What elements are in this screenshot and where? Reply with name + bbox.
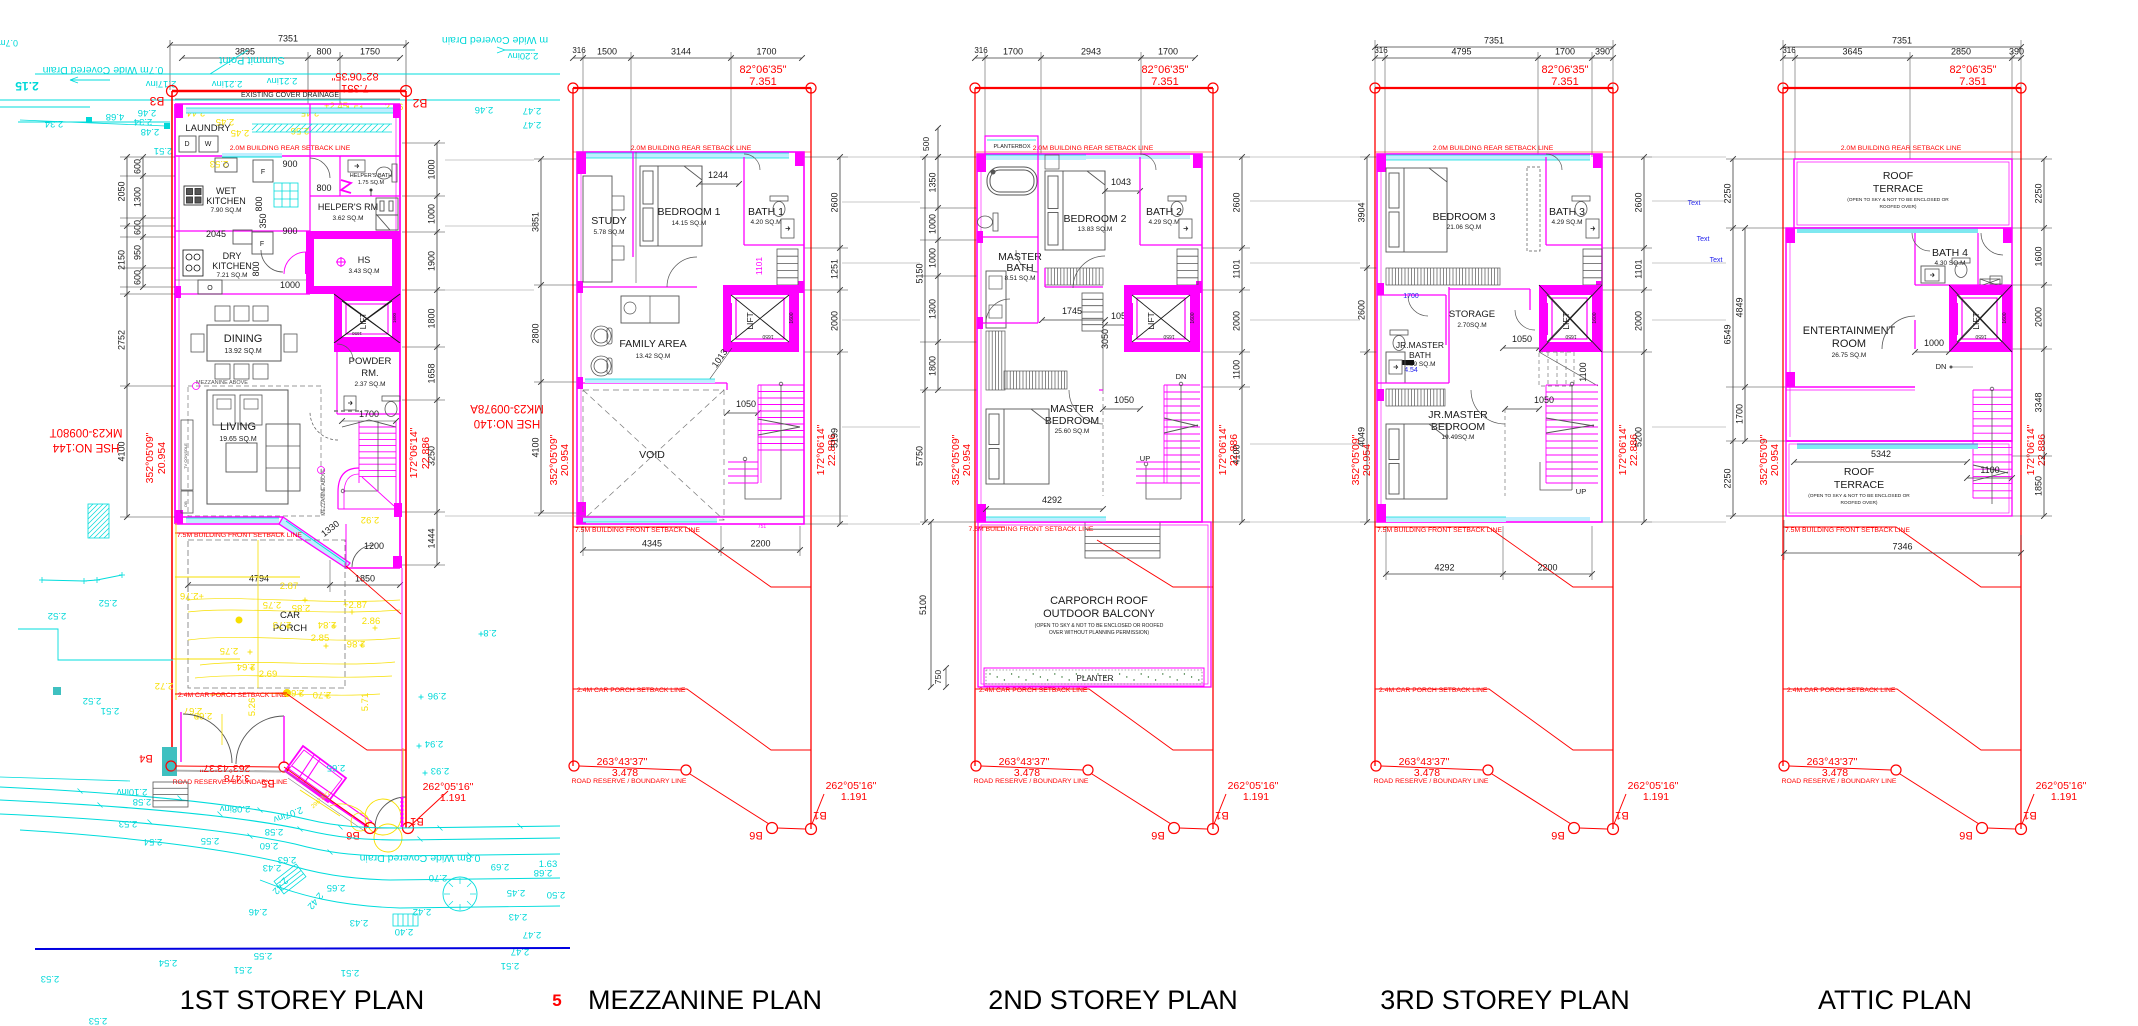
svg-text:1850: 1850 (2034, 476, 2044, 496)
svg-text:2.47: 2.47 (523, 105, 542, 116)
svg-text:+2.76: +2.76 (180, 590, 204, 601)
svg-text:1700: 1700 (1403, 293, 1419, 300)
svg-text:1600: 1600 (2002, 312, 2008, 323)
svg-text:2600: 2600 (830, 192, 840, 212)
svg-text:1600: 1600 (1190, 312, 1196, 323)
svg-text:82°06'35": 82°06'35" (1541, 64, 1588, 76)
svg-text:1100: 1100 (1578, 362, 1588, 381)
svg-text:ROOF: ROOF (1883, 170, 1913, 182)
svg-text:B1: B1 (2023, 809, 2036, 821)
svg-text:600: 600 (133, 270, 143, 285)
svg-text:B6: B6 (1551, 829, 1564, 841)
svg-text:1650: 1650 (762, 333, 773, 339)
svg-text:3144: 3144 (671, 47, 691, 57)
svg-text:2000: 2000 (1634, 311, 1644, 331)
svg-text:TERRACE: TERRACE (1834, 479, 1884, 491)
svg-text:20.954: 20.954 (961, 444, 973, 476)
svg-text:MK23-00980T: MK23-00980T (50, 426, 123, 438)
svg-text:MEZZANINE ABOVE: MEZZANINE ABOVE (196, 380, 248, 386)
svg-text:316: 316 (1374, 46, 1388, 55)
svg-text:Text: Text (1697, 236, 1710, 243)
svg-text:5: 5 (552, 991, 561, 1010)
svg-text:2.65: 2.65 (327, 882, 346, 893)
svg-text:13.92 SQ.M: 13.92 SQ.M (224, 348, 262, 355)
svg-text:2250: 2250 (1723, 183, 1733, 203)
svg-text:OVER WITHOUT PLANNING PERMISSI: OVER WITHOUT PLANNING PERMISSION) (1049, 630, 1150, 636)
svg-text:316: 316 (572, 46, 586, 55)
svg-text:ROAD RESERVE / BOUNDARY LINE: ROAD RESERVE / BOUNDARY LINE (974, 778, 1089, 785)
svg-text:ATTIC PLAN: ATTIC PLAN (1818, 985, 1972, 1015)
svg-text:1.63: 1.63 (539, 859, 558, 870)
svg-text:2.20inv: 2.20inv (507, 50, 538, 61)
svg-text:2.40: 2.40 (395, 926, 414, 937)
svg-text:2.15: 2.15 (15, 79, 39, 93)
svg-text:2.46: 2.46 (249, 906, 268, 917)
svg-text:HELPER'S RM: HELPER'S RM (318, 202, 378, 212)
svg-text:5150: 5150 (915, 263, 925, 283)
svg-text:800: 800 (254, 196, 264, 211)
svg-text:LIFT: LIFT (745, 312, 755, 329)
svg-text:1100: 1100 (1232, 360, 1242, 379)
svg-text:1050: 1050 (1534, 395, 1554, 405)
svg-text:OUTDOOR BALCONY: OUTDOOR BALCONY (1043, 608, 1156, 620)
svg-text:2.73: 2.73 (273, 619, 292, 630)
svg-text:2.51: 2.51 (154, 145, 173, 156)
svg-text:2.53: 2.53 (41, 973, 60, 984)
svg-text:TERRACE: TERRACE (1873, 183, 1923, 195)
svg-text:2.48: 2.48 (141, 126, 160, 137)
svg-text:m Wide Covered Drain: m Wide Covered Drain (442, 34, 548, 46)
svg-text:2050: 2050 (117, 181, 127, 201)
svg-text:6549: 6549 (1723, 324, 1733, 344)
svg-text:BEDROOM 1: BEDROOM 1 (657, 206, 720, 218)
svg-text:0.8m Wide Covered Drain: 0.8m Wide Covered Drain (359, 852, 480, 864)
svg-text:2.47: 2.47 (523, 929, 542, 940)
svg-text:1700: 1700 (1555, 47, 1575, 57)
svg-text:UP: UP (1576, 487, 1586, 496)
svg-text:BEDROOM 2: BEDROOM 2 (1063, 213, 1126, 225)
svg-text:800: 800 (251, 261, 261, 276)
svg-text:1300: 1300 (928, 299, 938, 319)
svg-text:7.5M BUILDING FRONT SETBACK LI: 7.5M BUILDING FRONT SETBACK LINE (1377, 527, 1502, 534)
svg-text:BATH: BATH (1006, 262, 1033, 274)
svg-text:82°06'35": 82°06'35" (1141, 64, 1188, 76)
svg-text:BATH: BATH (1409, 350, 1431, 360)
svg-text:2.34: 2.34 (45, 118, 64, 129)
svg-text:HSE NO:140: HSE NO:140 (474, 417, 540, 429)
svg-text:2.55: 2.55 (254, 950, 273, 961)
svg-text:5342: 5342 (1871, 449, 1891, 459)
svg-text:5100: 5100 (918, 595, 928, 615)
svg-text:2.72: 2.72 (155, 680, 174, 691)
svg-text:4.20 SQ.M: 4.20 SQ.M (750, 219, 781, 226)
svg-text:4345: 4345 (642, 539, 662, 549)
svg-text:7.351: 7.351 (1151, 76, 1179, 88)
svg-text:1750: 1750 (360, 47, 380, 57)
svg-text:7.351: 7.351 (1551, 76, 1579, 88)
svg-text:4794: 4794 (249, 574, 269, 584)
svg-text:2.96: 2.96 (428, 690, 447, 701)
svg-text:7351: 7351 (1484, 36, 1504, 46)
svg-text:350: 350 (258, 213, 268, 228)
svg-text:390: 390 (2009, 47, 2024, 57)
svg-text:2.75: 2.75 (263, 599, 282, 610)
svg-text:B5: B5 (261, 777, 274, 789)
svg-text:2.21inv: 2.21inv (266, 75, 297, 86)
svg-text:2000: 2000 (2034, 307, 2044, 327)
svg-text:1.191: 1.191 (440, 792, 466, 804)
svg-text:1000: 1000 (427, 159, 437, 179)
svg-text:1.191: 1.191 (2051, 791, 2077, 803)
svg-text:1600: 1600 (2034, 246, 2044, 266)
svg-text:2000: 2000 (830, 311, 840, 331)
svg-text:1.191: 1.191 (841, 791, 867, 803)
svg-text:316: 316 (1782, 46, 1796, 55)
svg-text:2.92: 2.92 (361, 514, 380, 525)
svg-text:0.7m Wide Covered Drain: 0.7m Wide Covered Drain (42, 64, 163, 76)
svg-text:ROOF: ROOF (1844, 466, 1874, 478)
svg-text:7351: 7351 (278, 34, 298, 44)
svg-text:2.4M CAR PORCH SETBACK LINE: 2.4M CAR PORCH SETBACK LINE (577, 687, 686, 694)
svg-text:MEZZANINE PLAN: MEZZANINE PLAN (588, 985, 822, 1015)
svg-text:2.69: 2.69 (259, 669, 278, 680)
svg-text:4849: 4849 (1735, 297, 1745, 317)
svg-text:20.954: 20.954 (559, 444, 571, 476)
svg-text:1.191: 1.191 (1243, 791, 1269, 803)
svg-text:B1: B1 (1215, 809, 1228, 821)
svg-text:1600: 1600 (789, 312, 795, 323)
svg-text:2.94: 2.94 (425, 738, 444, 749)
svg-text:5.26: 5.26 (247, 698, 258, 717)
svg-text:ROOM: ROOM (1832, 338, 1866, 350)
svg-text:ENTERTAINMENT: ENTERTAINMENT (1803, 325, 1896, 337)
svg-text:STUDY: STUDY (591, 215, 627, 227)
svg-text:2.4M CAR PORCH SETBACK LINE: 2.4M CAR PORCH SETBACK LINE (979, 687, 1088, 694)
svg-text:MK23-00978A: MK23-00978A (470, 402, 544, 414)
svg-text:WET: WET (216, 186, 236, 196)
svg-text:2.42: 2.42 (413, 906, 432, 917)
svg-text:2.43: 2.43 (509, 911, 528, 922)
svg-text:1050: 1050 (736, 399, 756, 409)
svg-text:1244: 1244 (708, 170, 728, 180)
svg-text:1700: 1700 (1003, 47, 1023, 57)
svg-text:0.7m: 0.7m (0, 38, 18, 48)
svg-text:7.351: 7.351 (341, 82, 369, 94)
svg-text:1000: 1000 (427, 204, 437, 224)
svg-text:2.70SQ.M: 2.70SQ.M (1457, 322, 1486, 329)
svg-text:JR.MASTER: JR.MASTER (1428, 409, 1488, 421)
svg-text:20.954: 20.954 (1769, 444, 1781, 476)
svg-text:14.15 SQ.M: 14.15 SQ.M (672, 220, 707, 227)
svg-text:2.52: 2.52 (99, 597, 118, 608)
svg-text:4292: 4292 (1434, 563, 1454, 573)
svg-text:13.83 SQ.M: 13.83 SQ.M (1078, 226, 1113, 233)
svg-text:900: 900 (282, 159, 297, 169)
svg-text:950: 950 (133, 245, 143, 260)
svg-text:LAUNDRY: LAUNDRY (185, 123, 231, 134)
svg-text:1600: 1600 (392, 312, 397, 323)
svg-text:2.0M BUILDING REAR SETBACK LIN: 2.0M BUILDING REAR SETBACK LINE (1033, 145, 1154, 152)
svg-text:2.54: 2.54 (144, 836, 163, 847)
svg-text:B6: B6 (749, 829, 762, 841)
svg-text:B6: B6 (1151, 829, 1164, 841)
svg-text:HSE NO:144: HSE NO:144 (52, 441, 119, 453)
svg-text:(OPEN TO SKY & NOT TO BE ENCLO: (OPEN TO SKY & NOT TO BE ENCLOSED OR (1847, 197, 1949, 203)
svg-text:2.53: 2.53 (89, 1015, 108, 1026)
svg-text:2.0M BUILDING REAR SETBACK LIN: 2.0M BUILDING REAR SETBACK LINE (230, 145, 351, 152)
svg-text:B1: B1 (410, 815, 423, 827)
svg-text:2.45: 2.45 (231, 127, 250, 138)
svg-text:ROAD RESERVE / BOUNDARY LINE: ROAD RESERVE / BOUNDARY LINE (1374, 778, 1489, 785)
svg-text:2.47: 2.47 (523, 119, 542, 130)
svg-text:MEZZANINE ABOVE: MEZZANINE ABOVE (321, 468, 327, 516)
svg-text:2200: 2200 (750, 539, 770, 549)
svg-text:(OPEN TO SKY & NOT TO BE ENCLO: (OPEN TO SKY & NOT TO BE ENCLOSED OR ROO… (1035, 623, 1164, 629)
svg-text:2250: 2250 (2034, 183, 2044, 203)
svg-text:2.51: 2.51 (234, 964, 253, 975)
svg-text:1650: 1650 (351, 331, 362, 336)
svg-text:2.08inv: 2.08inv (219, 803, 250, 814)
svg-text:2.65: 2.65 (327, 762, 346, 773)
svg-text:RM.: RM. (361, 368, 378, 379)
svg-text:500: 500 (921, 137, 931, 151)
svg-text:1600: 1600 (1592, 312, 1598, 323)
svg-text:2.37 SQ.M: 2.37 SQ.M (354, 381, 385, 388)
svg-text:1.75 SQ.M: 1.75 SQ.M (358, 180, 385, 186)
svg-text:172°06'14": 172°06'14" (408, 427, 420, 478)
svg-text:2.85: 2.85 (311, 633, 330, 644)
svg-text:7.351: 7.351 (749, 76, 777, 88)
svg-text:2.51: 2.51 (501, 960, 520, 971)
svg-text:1650: 1650 (1975, 333, 1986, 339)
svg-text:2200: 2200 (1537, 563, 1557, 573)
svg-text:KITCHEN: KITCHEN (206, 196, 246, 206)
svg-text:LIFT: LIFT (1146, 312, 1156, 329)
svg-text:600: 600 (133, 220, 143, 235)
svg-text:2150: 2150 (117, 250, 127, 270)
svg-text:2.46: 2.46 (475, 104, 494, 115)
svg-text:3.43 SQ.M: 3.43 SQ.M (348, 268, 379, 275)
svg-text:2.58: 2.58 (133, 796, 152, 807)
svg-text:4100: 4100 (1232, 444, 1242, 464)
svg-text:2.84: 2.84 (318, 619, 337, 630)
svg-text:22.886: 22.886 (420, 437, 432, 469)
svg-text:2.43: 2.43 (350, 917, 369, 928)
svg-text:5200: 5200 (1634, 427, 1644, 447)
svg-text:600: 600 (133, 159, 143, 174)
svg-text:2600: 2600 (1357, 300, 1367, 320)
svg-text:POWDER: POWDER (349, 356, 392, 367)
svg-text:2600: 2600 (1634, 192, 1644, 212)
svg-text:4100: 4100 (531, 437, 541, 457)
svg-text:BEDROOM: BEDROOM (1045, 415, 1099, 427)
svg-text:ROAD RESERVE / BOUNDARY LINE: ROAD RESERVE / BOUNDARY LINE (1782, 778, 1897, 785)
svg-text:7.5M BUILDING FRONT SETBACK LI: 7.5M BUILDING FRONT SETBACK LINE (177, 532, 302, 539)
svg-text:7.90 SQ.M: 7.90 SQ.M (210, 207, 241, 214)
svg-text:3.62 SQ.M: 3.62 SQ.M (332, 215, 363, 222)
svg-text:ROAD RESERVE / BOUNDARY LINE: ROAD RESERVE / BOUNDARY LINE (572, 778, 687, 785)
svg-text:2.60: 2.60 (260, 840, 279, 851)
svg-text:F: F (260, 241, 264, 248)
svg-text:2.4M CAR PORCH SETBACK LINE: 2.4M CAR PORCH SETBACK LINE (1787, 687, 1896, 694)
svg-text:2.86: 2.86 (362, 616, 381, 627)
svg-text:LIFT: LIFT (359, 313, 368, 330)
svg-text:1650: 1650 (1163, 333, 1174, 339)
svg-text:1050: 1050 (1114, 395, 1134, 405)
svg-text:82°06'35": 82°06'35" (739, 64, 786, 76)
svg-text:VOID: VOID (639, 449, 665, 461)
svg-text:1700: 1700 (359, 409, 379, 419)
svg-text:CARPORCH ROOF: CARPORCH ROOF (1050, 595, 1148, 607)
svg-text:2.69: 2.69 (491, 861, 510, 872)
svg-text:1.191: 1.191 (1643, 791, 1669, 803)
svg-text:B6: B6 (346, 829, 359, 841)
svg-text:2ND STOREY PLAN: 2ND STOREY PLAN (988, 985, 1238, 1015)
svg-text:1800: 1800 (427, 308, 437, 328)
svg-text:PLANTER: PLANTER (1077, 674, 1114, 683)
svg-text:LIVING: LIVING (220, 421, 256, 433)
svg-text:BEDROOM: BEDROOM (1431, 421, 1485, 433)
svg-text:D: D (184, 141, 189, 148)
svg-text:3348: 3348 (2034, 392, 2044, 412)
svg-text:Summit Point: Summit Point (219, 54, 284, 66)
svg-text:751: 751 (758, 524, 767, 530)
svg-text:1745: 1745 (1062, 306, 1082, 316)
svg-text:F: F (261, 169, 265, 176)
svg-text:1043: 1043 (1111, 177, 1131, 187)
svg-text:DRY: DRY (223, 251, 242, 261)
svg-text:+2.87: +2.87 (343, 600, 367, 611)
svg-text:2.53: 2.53 (119, 818, 138, 829)
svg-text:B3: B3 (149, 94, 164, 108)
svg-text:4.68: 4.68 (106, 111, 125, 122)
svg-text:JR.MASTER: JR.MASTER (1396, 340, 1444, 350)
svg-text:2.64: 2.64 (237, 661, 256, 672)
svg-text:1700: 1700 (756, 47, 776, 57)
svg-text:4.29 SQ.M: 4.29 SQ.M (1148, 219, 1179, 226)
svg-text:BEDROOM 3: BEDROOM 3 (1432, 211, 1495, 223)
svg-text:7.21 SQ.M: 7.21 SQ.M (216, 272, 247, 279)
svg-text:2000: 2000 (1232, 311, 1242, 331)
svg-text:ROOFED OVER): ROOFED OVER) (1840, 500, 1877, 506)
svg-text:7351: 7351 (1892, 36, 1912, 46)
svg-text:B1: B1 (1615, 809, 1628, 821)
svg-text:1100: 1100 (1980, 465, 1999, 475)
svg-text:1000: 1000 (928, 214, 938, 234)
svg-text:7.351: 7.351 (1959, 76, 1987, 88)
svg-text:1200: 1200 (364, 541, 384, 551)
svg-text:1101: 1101 (1634, 259, 1644, 278)
svg-text:2850: 2850 (1951, 47, 1971, 57)
svg-text:1444: 1444 (427, 528, 437, 548)
svg-text:82°06'35": 82°06'35" (331, 70, 378, 82)
svg-text:19.65 SQ.M: 19.65 SQ.M (219, 436, 257, 443)
svg-text:2.0M BUILDING REAR SETBACK LIN: 2.0M BUILDING REAR SETBACK LINE (1841, 145, 1962, 152)
svg-text:2.52: 2.52 (83, 695, 102, 706)
svg-text:5.78 SQ.M: 5.78 SQ.M (593, 229, 624, 236)
svg-text:2045: 2045 (206, 229, 226, 239)
svg-text:2.52: 2.52 (48, 610, 67, 621)
svg-text:2.0M BUILDING REAR SETBACK LIN: 2.0M BUILDING REAR SETBACK LINE (1433, 145, 1554, 152)
svg-text:W: W (205, 141, 212, 148)
svg-text:STORAGE: STORAGE (1449, 309, 1495, 320)
svg-text:ROOFED OVER): ROOFED OVER) (1879, 204, 1916, 210)
svg-text:316: 316 (974, 46, 988, 55)
svg-text:13.42 SQ.M: 13.42 SQ.M (636, 353, 671, 360)
svg-text:1000: 1000 (1924, 338, 1944, 348)
svg-text:2.55: 2.55 (201, 835, 220, 846)
svg-text:5199: 5199 (830, 428, 840, 448)
svg-text:2752: 2752 (117, 330, 127, 350)
svg-text:3904: 3904 (1357, 202, 1367, 222)
svg-text:2.0M BUILDING REAR SETBACK LIN: 2.0M BUILDING REAR SETBACK LINE (631, 145, 752, 152)
svg-text:22.886: 22.886 (2036, 434, 2048, 466)
svg-text:O: O (207, 285, 213, 292)
svg-text:2.4M CAR PORCH SETBACK LINE: 2.4M CAR PORCH SETBACK LINE (1379, 687, 1488, 694)
svg-text:2943: 2943 (1081, 47, 1101, 57)
svg-text:1ST STOREY PLAN: 1ST STOREY PLAN (180, 985, 425, 1015)
svg-text:1658: 1658 (427, 363, 437, 383)
svg-text:2.50: 2.50 (547, 889, 566, 900)
svg-text:BATH 4: BATH 4 (1932, 247, 1968, 259)
svg-text:4.54: 4.54 (1404, 367, 1418, 374)
svg-text:1101: 1101 (1232, 259, 1242, 278)
svg-text:2.75: 2.75 (220, 645, 239, 656)
svg-text:3851: 3851 (531, 212, 541, 232)
svg-text:2600: 2600 (1232, 192, 1242, 212)
svg-text:DB: DB (183, 501, 188, 507)
svg-text:1650: 1650 (1565, 333, 1576, 339)
svg-text:2.17inv: 2.17inv (145, 78, 176, 89)
svg-text:EXISTING COVER DRAINAGE: EXISTING COVER DRAINAGE (241, 92, 339, 99)
svg-text:2.93: 2.93 (431, 765, 450, 776)
svg-text:390: 390 (1595, 47, 1610, 57)
svg-text:2250: 2250 (1723, 468, 1733, 488)
svg-text:KITCHEN: KITCHEN (212, 261, 252, 271)
svg-text:5.71: 5.71 (360, 693, 371, 712)
svg-text:1251: 1251 (830, 259, 840, 279)
svg-text:26.75 SQ.M: 26.75 SQ.M (1832, 352, 1867, 359)
svg-text:HELPER'S BATH: HELPER'S BATH (350, 173, 393, 179)
svg-text:B1: B1 (813, 809, 826, 821)
svg-text:21.06 SQ.M: 21.06 SQ.M (1447, 224, 1482, 231)
svg-text:2.54: 2.54 (159, 957, 178, 968)
svg-text:900: 900 (282, 226, 297, 236)
svg-text:1800: 1800 (928, 356, 938, 376)
svg-text:1000: 1000 (280, 280, 300, 290)
svg-text:20.954: 20.954 (156, 442, 168, 474)
svg-text:FAMILY AREA: FAMILY AREA (619, 338, 686, 350)
svg-text:1101: 1101 (754, 257, 764, 276)
svg-text:PLANTERBOX: PLANTERBOX (994, 144, 1031, 150)
svg-text:7.5M BUILDING FRONT SETBACK LI: 7.5M BUILDING FRONT SETBACK LINE (1785, 527, 1910, 534)
svg-text:800: 800 (316, 183, 331, 193)
svg-text:4795: 4795 (1451, 47, 1471, 57)
svg-text:1700: 1700 (1158, 47, 1178, 57)
svg-text:1050: 1050 (1512, 334, 1532, 344)
svg-text:2.86: 2.86 (347, 638, 366, 649)
svg-text:3RD STOREY PLAN: 3RD STOREY PLAN (1380, 985, 1630, 1015)
svg-text:2.70: 2.70 (429, 872, 448, 883)
svg-text:B2: B2 (412, 96, 427, 110)
svg-text:800: 800 (316, 47, 331, 57)
svg-text:4292: 4292 (1042, 495, 1062, 505)
svg-text:2.58: 2.58 (265, 826, 284, 837)
svg-text:MASTER: MASTER (1050, 403, 1094, 415)
svg-text:2.4M CAR PORCH SETBACK LINE: 2.4M CAR PORCH SETBACK LINE (178, 692, 287, 699)
svg-text:7346: 7346 (1892, 542, 1912, 552)
svg-text:2.43: 2.43 (263, 862, 282, 873)
